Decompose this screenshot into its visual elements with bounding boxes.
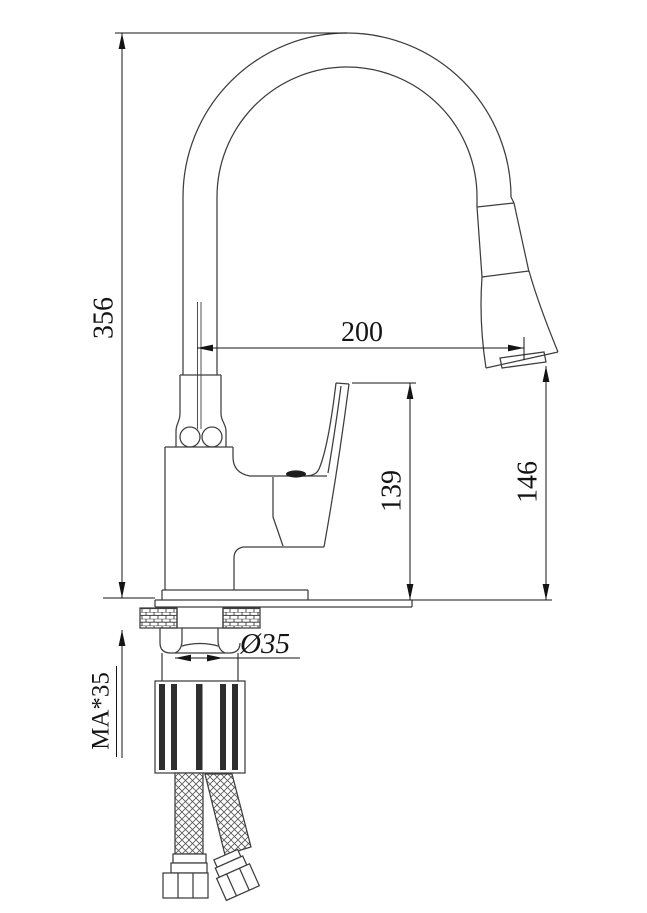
handle-lever [303, 383, 349, 547]
mounting-shank [177, 608, 223, 628]
dimension-label-ma35: MA*35 [88, 672, 115, 750]
dimension-body-height: 139 [352, 383, 416, 600]
supply-hose-right [205, 774, 259, 900]
supply-hose-left [163, 773, 208, 898]
dimension-deck-thickness: MA*35 [88, 630, 126, 758]
dimension-label-356: 356 [89, 297, 120, 339]
mixer-body [165, 447, 327, 590]
spray-head-connector [477, 203, 529, 277]
hex-lock-nut [160, 628, 240, 653]
dimension-outlet-height: 146 [412, 366, 552, 600]
deck-plate [155, 600, 412, 607]
dimension-label-146: 146 [513, 461, 544, 503]
supply-fitting-circle-right [202, 427, 222, 447]
dimension-spout-reach: 200 [197, 317, 524, 360]
dimension-line [103, 33, 347, 598]
base-flange [162, 590, 308, 600]
dimension-line [117, 630, 123, 758]
pullout-hose-inner-lines [198, 302, 202, 429]
supply-fitting-circle-left [180, 427, 200, 447]
ribbed-mounting-nut [155, 681, 245, 773]
faucet-technical-drawing-page: 356 200 139 146 Ø35 [0, 0, 647, 913]
handle-set-screw [286, 470, 306, 477]
dimensions: 356 200 139 146 Ø35 [88, 33, 553, 758]
dimension-label-139: 139 [377, 470, 408, 512]
knurled-washer-left [140, 608, 177, 628]
faucet-technical-drawing: 356 200 139 146 Ø35 [0, 0, 647, 913]
dimension-arrows [119, 630, 126, 646]
dimension-label-200: 200 [341, 317, 383, 348]
shank-tube [162, 653, 238, 681]
faucet-outline [140, 33, 558, 900]
dimension-label-diameter-35: Ø35 [239, 628, 290, 660]
knurled-washer-right [223, 608, 260, 628]
spray-head [481, 271, 558, 368]
dimension-overall-height: 356 [89, 33, 348, 598]
